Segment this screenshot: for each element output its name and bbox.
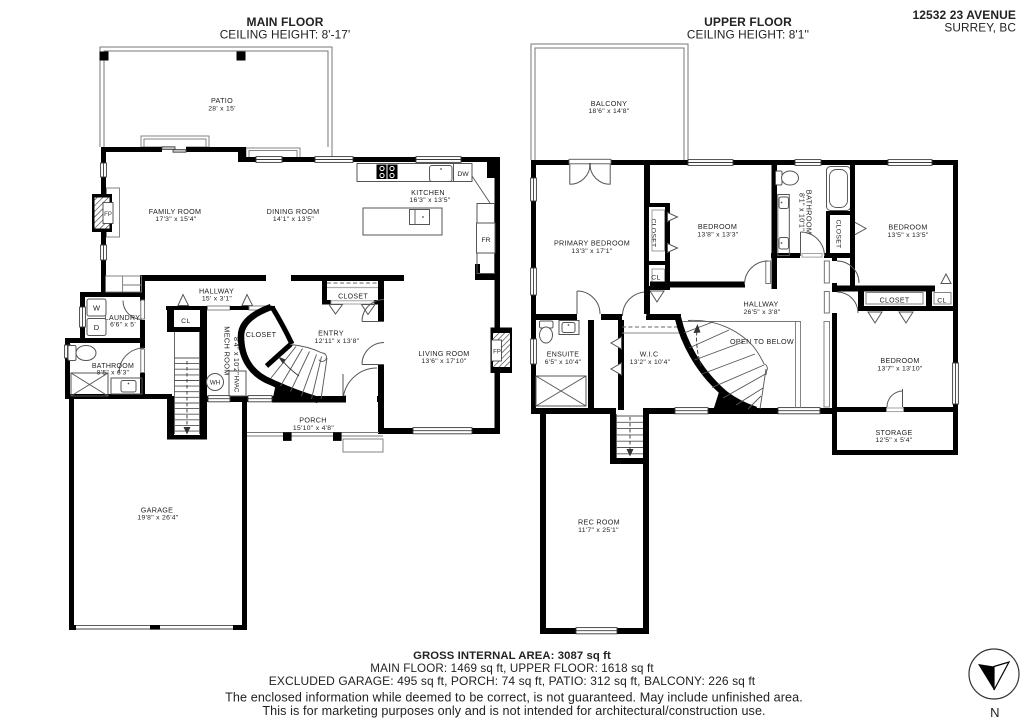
svg-text:W: W bbox=[93, 304, 101, 313]
svg-text:SURREY, BC: SURREY, BC bbox=[944, 21, 1016, 35]
svg-text:STORAGE: STORAGE bbox=[875, 428, 912, 437]
svg-text:14'1" x 13'5": 14'1" x 13'5" bbox=[273, 216, 314, 223]
svg-text:12'11" x 13'8": 12'11" x 13'8" bbox=[315, 338, 360, 345]
svg-text:8'4" x 10'2": 8'4" x 10'2" bbox=[232, 337, 239, 375]
svg-text:FP: FP bbox=[493, 350, 501, 356]
svg-text:WH: WH bbox=[210, 380, 220, 387]
svg-text:DW: DW bbox=[457, 171, 469, 178]
svg-text:6'6" x 5': 6'6" x 5' bbox=[110, 321, 136, 328]
svg-text:CLOSET: CLOSET bbox=[246, 330, 277, 339]
svg-text:15' x 3'1": 15' x 3'1" bbox=[202, 295, 233, 302]
svg-text:18'6" x 14'8": 18'6" x 14'8" bbox=[588, 108, 629, 115]
svg-text:BALCONY: BALCONY bbox=[591, 99, 627, 108]
svg-text:28' x 15': 28' x 15' bbox=[208, 106, 236, 113]
svg-text:CL: CL bbox=[651, 275, 661, 282]
svg-text:HALLWAY: HALLWAY bbox=[199, 287, 234, 296]
svg-text:BEDROOM: BEDROOM bbox=[888, 223, 927, 232]
svg-text:13'7" x 13'10": 13'7" x 13'10" bbox=[877, 365, 923, 372]
svg-text:LIVING ROOM: LIVING ROOM bbox=[418, 349, 469, 358]
svg-text:19'8" x 26'4": 19'8" x 26'4" bbox=[137, 514, 178, 521]
svg-text:11'7" x 25'1": 11'7" x 25'1" bbox=[578, 527, 619, 534]
svg-text:EXCLUDED GARAGE: 495 sq ft, PO: EXCLUDED GARAGE: 495 sq ft, PORCH: 74 sq… bbox=[269, 674, 756, 688]
svg-text:12'5" x 5'4": 12'5" x 5'4" bbox=[875, 437, 912, 444]
svg-text:GROSS INTERNAL AREA: 3087 sq f: GROSS INTERNAL AREA: 3087 sq ft bbox=[413, 650, 611, 662]
svg-text:The enclosed information while: The enclosed information while deemed to… bbox=[225, 691, 803, 705]
svg-text:D: D bbox=[94, 323, 100, 332]
svg-text:CEILING HEIGHT: 8'1'': CEILING HEIGHT: 8'1'' bbox=[687, 28, 809, 42]
svg-text:PATIO: PATIO bbox=[211, 96, 233, 105]
svg-text:MECH ROOM: MECH ROOM bbox=[223, 326, 232, 376]
svg-text:DINING ROOM: DINING ROOM bbox=[267, 207, 320, 216]
svg-text:13'2" x 10'4": 13'2" x 10'4" bbox=[630, 359, 671, 366]
svg-text:17'3" x 15'4": 17'3" x 15'4" bbox=[155, 216, 196, 223]
svg-text:13'5" x 13'5": 13'5" x 13'5" bbox=[887, 232, 928, 239]
svg-text:ENTRY: ENTRY bbox=[318, 329, 344, 338]
svg-text:13'8" x 13'3": 13'8" x 13'3" bbox=[697, 231, 738, 238]
svg-text:CL: CL bbox=[181, 318, 191, 325]
svg-text:BEDROOM: BEDROOM bbox=[698, 222, 737, 231]
svg-text:HVAC: HVAC bbox=[233, 376, 240, 393]
svg-text:CLOSET: CLOSET bbox=[650, 219, 657, 248]
svg-text:FR: FR bbox=[481, 237, 490, 244]
svg-text:KITCHEN: KITCHEN bbox=[411, 188, 445, 197]
svg-text:GARAGE: GARAGE bbox=[141, 506, 174, 515]
svg-text:BATHROOM: BATHROOM bbox=[805, 190, 814, 235]
svg-text:26'5" x 3'8": 26'5" x 3'8" bbox=[743, 309, 780, 316]
svg-text:HALLWAY: HALLWAY bbox=[743, 300, 778, 309]
svg-text:FAMILY ROOM: FAMILY ROOM bbox=[149, 207, 202, 216]
svg-text:CLOSET: CLOSET bbox=[880, 298, 910, 305]
svg-text:16'3" x 13'5": 16'3" x 13'5" bbox=[409, 197, 450, 204]
svg-text:FP: FP bbox=[104, 212, 112, 218]
svg-text:8'1" x 10'1": 8'1" x 10'1" bbox=[798, 193, 805, 231]
svg-text:W.I.C: W.I.C bbox=[640, 352, 659, 359]
svg-text:PRIMARY BEDROOM: PRIMARY BEDROOM bbox=[554, 239, 630, 248]
svg-text:This is for marketing purposes: This is for marketing purposes only and … bbox=[262, 704, 765, 718]
svg-text:13'6" x 17'10": 13'6" x 17'10" bbox=[421, 358, 467, 365]
svg-text:ENSUITE: ENSUITE bbox=[547, 352, 579, 359]
svg-text:OPEN TO BELOW: OPEN TO BELOW bbox=[730, 337, 794, 346]
svg-text:CEILING HEIGHT: 8'-17': CEILING HEIGHT: 8'-17' bbox=[220, 28, 351, 42]
svg-text:REC ROOM: REC ROOM bbox=[578, 518, 620, 527]
svg-text:6'5" x 10'4": 6'5" x 10'4" bbox=[545, 359, 582, 366]
svg-text:CLOSET: CLOSET bbox=[338, 294, 368, 301]
svg-text:CLOSET: CLOSET bbox=[835, 220, 842, 249]
svg-text:CL: CL bbox=[937, 298, 947, 305]
svg-text:BEDROOM: BEDROOM bbox=[880, 356, 919, 365]
svg-text:N: N bbox=[990, 705, 1000, 720]
svg-text:15'10" x 4'8": 15'10" x 4'8" bbox=[293, 425, 334, 432]
svg-text:PORCH: PORCH bbox=[299, 416, 326, 425]
svg-text:13'3" x 17'1": 13'3" x 17'1" bbox=[571, 248, 612, 255]
